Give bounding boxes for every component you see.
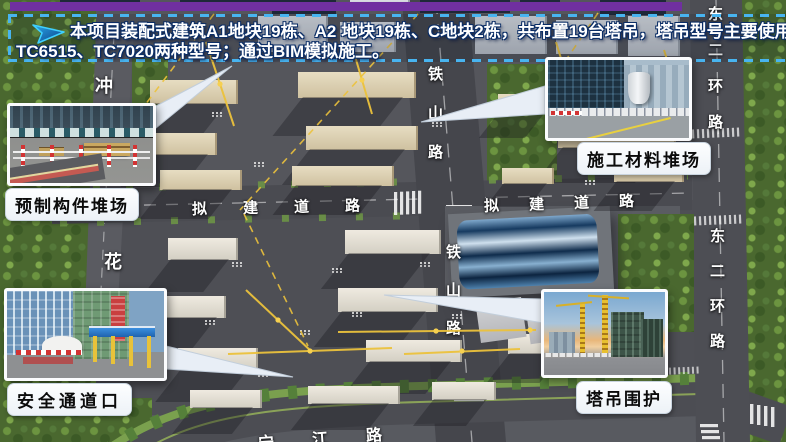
inset-material-yard [545, 57, 692, 141]
pointer-precast-yard [156, 66, 232, 128]
banner-text-line2: TC6515、TC7020两种型号；通过BIM模拟施工。 [16, 42, 389, 61]
striped-post [107, 145, 111, 167]
red-floor [23, 357, 73, 364]
crane-mast [602, 295, 608, 356]
bim-site-plan-slide: 铁山路 铁山路 拟建道路 拟建道路 东二环路 东二环路 冲 花 宁江路 [0, 0, 786, 442]
canopy-post [129, 336, 133, 366]
callout-label-safety-gate: 安全通道口 [7, 383, 132, 416]
striped-barriers [16, 350, 82, 355]
canopy-post [147, 336, 151, 367]
yard-canopy [10, 128, 153, 138]
photo-crane-enclosure [544, 292, 665, 375]
crane-jib [556, 301, 592, 307]
inset-crane-enclosure [541, 289, 668, 378]
striped-post [133, 145, 137, 167]
callout-label-precast-yard: 预制构件堆场 [5, 188, 139, 221]
pointer-crane-enclosure [384, 295, 543, 323]
canopy-post [111, 336, 115, 364]
barrier-strip [551, 111, 582, 115]
banner-border-top [8, 14, 786, 17]
white-tent [42, 336, 83, 350]
callout-label-material-yard: 施工材料堆场 [577, 142, 711, 175]
distant-buildings [549, 332, 576, 355]
banner-border-left [8, 14, 11, 62]
site-fence [544, 353, 611, 356]
building-windows [10, 106, 153, 129]
enclosed-building [641, 319, 663, 357]
slide-top-bar [10, 2, 682, 11]
photo-safety-gate [7, 291, 164, 378]
silo [628, 72, 649, 103]
banner-text-line1: 本项目装配式建筑A1地块19栋、A2 地块19栋、C地块2栋，共布置19台塔吊，… [70, 22, 786, 41]
crane-mast [580, 304, 585, 354]
crane-radius-dashed-lines [126, 13, 598, 346]
photo-material-yard [548, 60, 689, 138]
pointer-safety-gate [166, 346, 293, 377]
canopy-post [93, 336, 97, 362]
project-summary-banner: 本项目装配式建筑A1地块19栋、A2 地块19栋、C地块2栋，共布置19台塔吊，… [8, 14, 786, 62]
striped-post [21, 145, 25, 167]
inset-safety-gate [4, 288, 167, 381]
inset-precast-yard [7, 103, 156, 186]
safety-canopy [89, 326, 155, 337]
enclosed-building [611, 312, 645, 357]
pointer-material-yard [421, 86, 545, 122]
callout-label-crane-enclosure: 塔吊围护 [576, 381, 672, 414]
photo-precast-yard [10, 106, 153, 183]
